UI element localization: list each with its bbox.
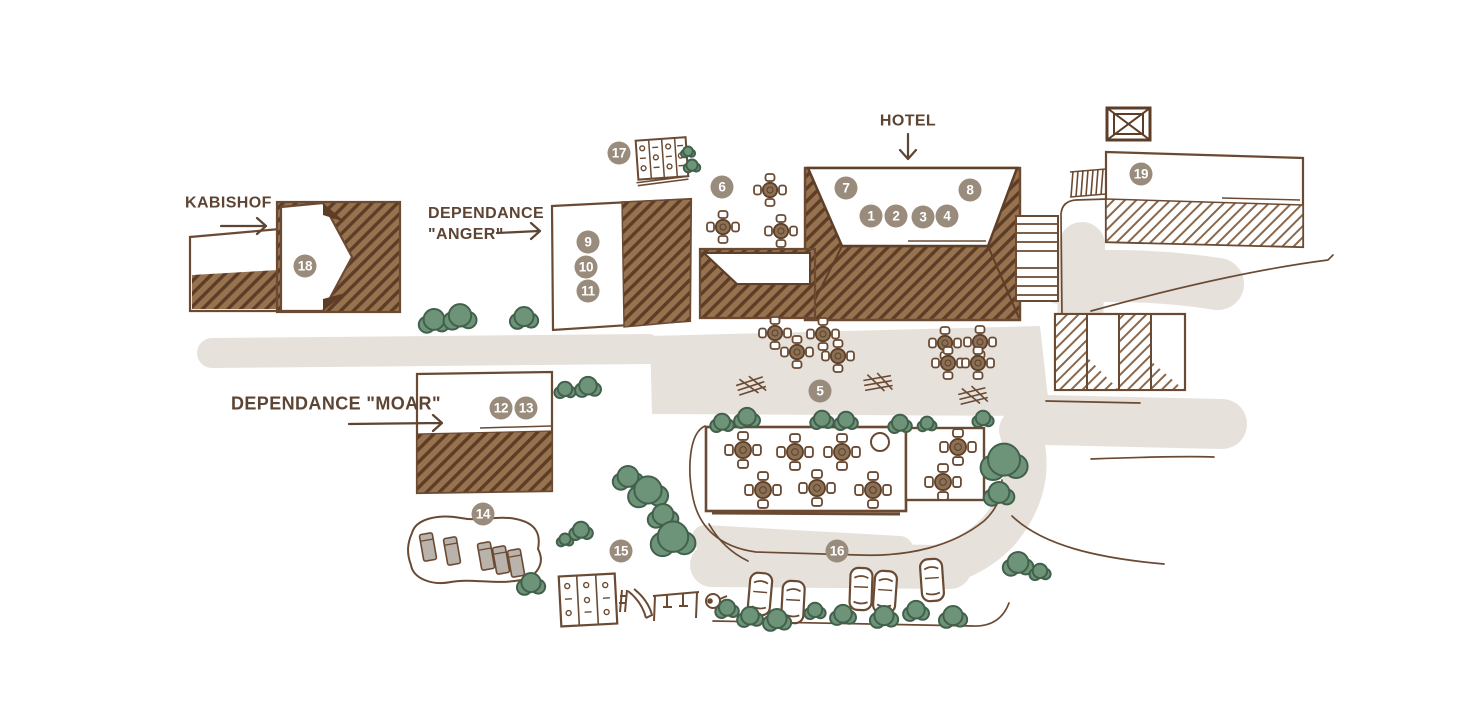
car	[849, 568, 872, 611]
table-with-chairs	[707, 211, 739, 243]
building-dependance-moar	[417, 372, 552, 493]
map-marker-4: 4	[936, 205, 959, 228]
car	[920, 558, 945, 601]
map-marker-8: 8	[959, 179, 982, 202]
tree	[888, 415, 912, 433]
label-dependance-moar: DEPENDANCE "MOAR"	[231, 394, 441, 415]
table-with-chairs	[765, 215, 797, 247]
label-dependance-anger-line1: DEPENDANCE	[428, 203, 544, 224]
map-marker-3: 3	[912, 206, 935, 229]
map-marker-14: 14	[472, 503, 495, 526]
map-marker-19: 19	[1130, 163, 1153, 186]
label-dependance-anger-line2: "ANGER"	[428, 224, 544, 245]
building-hotel-annex	[700, 249, 815, 318]
pavilion-roof	[1107, 108, 1150, 140]
map-marker-7: 7	[835, 177, 858, 200]
map-marker-15: 15	[610, 540, 633, 563]
tree	[510, 307, 538, 329]
hotel-site-map: HOTEL KABISHOF DEPENDANCE "ANGER" DEPEND…	[0, 0, 1462, 724]
label-hotel: HOTEL	[880, 111, 936, 132]
slide	[619, 589, 652, 618]
tree	[939, 606, 967, 628]
map-marker-2: 2	[885, 205, 908, 228]
map-marker-9: 9	[577, 231, 600, 254]
map-marker-5: 5	[809, 380, 832, 403]
tree	[903, 601, 929, 621]
structure-17	[634, 137, 690, 186]
tree	[569, 522, 593, 540]
map-marker-6: 6	[711, 176, 734, 199]
map-marker-10: 10	[575, 256, 598, 279]
building-dependance-anger	[552, 199, 691, 330]
tree	[1003, 552, 1034, 576]
hotel-arrow	[900, 134, 916, 159]
fence	[1070, 169, 1106, 197]
map-marker-18: 18	[294, 255, 317, 278]
building-garage	[1055, 314, 1185, 390]
map-marker-12: 12	[490, 397, 513, 420]
label-kabishof: KABISHOF	[185, 193, 272, 214]
map-marker-13: 13	[515, 397, 538, 420]
parasol	[871, 433, 889, 451]
swing	[653, 592, 699, 621]
tree	[444, 304, 477, 329]
map-marker-1: 1	[860, 205, 883, 228]
tree	[710, 414, 734, 432]
map-marker-16: 16	[826, 540, 849, 563]
hotel-stairs	[1016, 216, 1058, 301]
building-kabishof	[190, 202, 400, 312]
map-drawing	[0, 0, 1462, 724]
tree	[918, 417, 937, 432]
lawn-14	[408, 517, 541, 583]
tree	[804, 603, 825, 619]
map-marker-17: 17	[608, 142, 631, 165]
climbing-frame	[559, 574, 618, 627]
tree	[575, 377, 601, 397]
map-marker-11: 11	[577, 280, 600, 303]
table-with-chairs	[754, 174, 786, 206]
label-dependance-anger: DEPENDANCE "ANGER"	[428, 203, 544, 245]
tree	[554, 382, 575, 398]
